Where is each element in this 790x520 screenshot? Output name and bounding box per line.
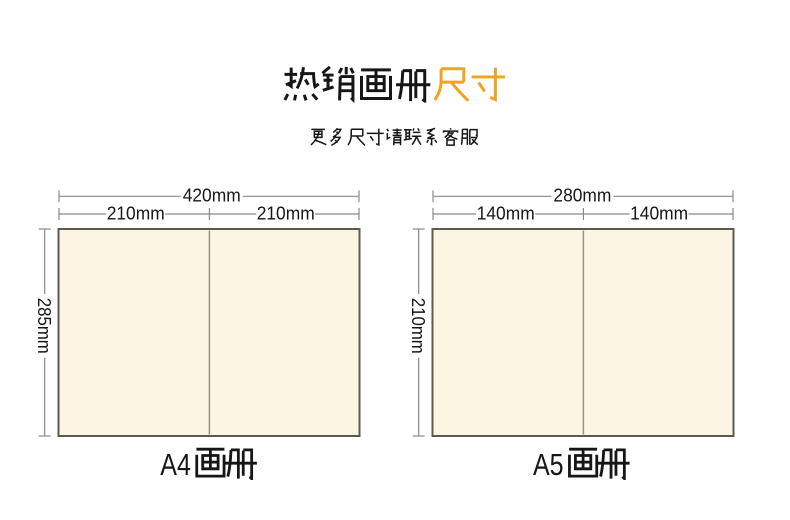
svg-text:285mm: 285mm [34,298,54,354]
svg-text:210mm: 210mm [408,298,428,354]
svg-text:210mm: 210mm [257,203,315,223]
svg-text:210mm: 210mm [107,203,165,223]
svg-text:140mm: 140mm [477,203,535,223]
svg-text:420mm: 420mm [183,186,241,206]
svg-text:A4: A4 [160,447,191,482]
svg-text:280mm: 280mm [553,186,611,206]
svg-text:A5: A5 [533,447,564,482]
svg-text:140mm: 140mm [630,203,688,223]
